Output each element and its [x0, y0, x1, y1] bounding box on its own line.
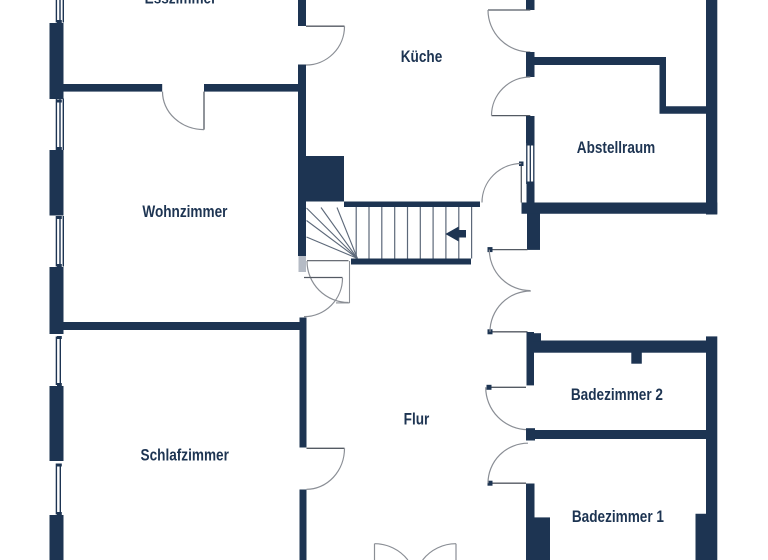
- svg-text:Badezimmer 2: Badezimmer 2: [571, 386, 663, 405]
- svg-text:Esszimmer: Esszimmer: [145, 0, 217, 8]
- svg-text:Flur: Flur: [404, 410, 430, 429]
- svg-text:Küche: Küche: [401, 48, 443, 67]
- svg-text:Badezimmer 1: Badezimmer 1: [572, 508, 665, 527]
- svg-text:Schlafzimmer: Schlafzimmer: [141, 446, 229, 465]
- svg-text:Wohnzimmer: Wohnzimmer: [142, 203, 227, 222]
- svg-text:Abstellraum: Abstellraum: [577, 139, 656, 158]
